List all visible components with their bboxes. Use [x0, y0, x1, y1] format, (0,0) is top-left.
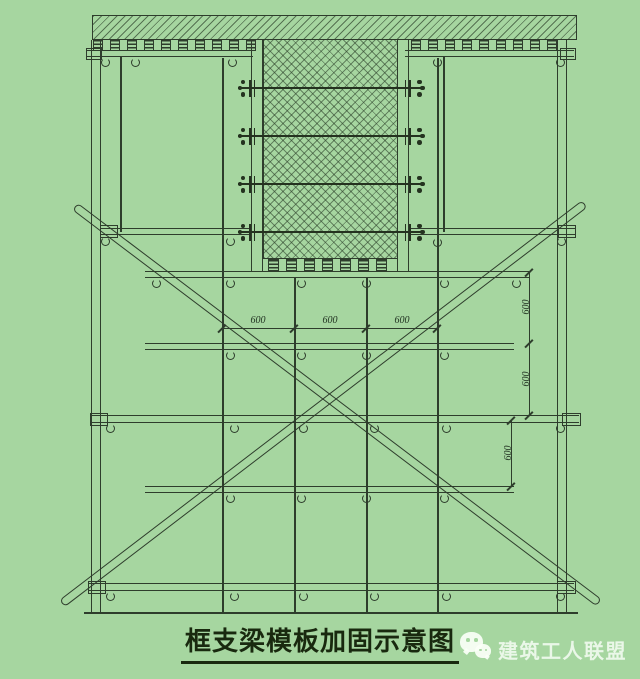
tie-rod-plate	[405, 224, 407, 241]
dim-label: 600	[522, 366, 532, 392]
slab-batten	[161, 39, 171, 51]
diagonal-brace-left-to-right	[72, 203, 601, 606]
dim-label: 600	[504, 440, 514, 466]
slab-batten	[411, 39, 421, 51]
slab-batten	[110, 39, 120, 51]
coupler-hook	[226, 279, 235, 288]
coupler-hook	[106, 424, 115, 433]
slab-section-hatched	[92, 15, 577, 40]
wing-nut	[238, 134, 243, 139]
article-image: 600 600 600 600 600 600 框支梁模板加固示意图 建筑工人联…	[0, 0, 640, 679]
tie-rod-plate	[409, 176, 411, 193]
tie-rod	[238, 183, 424, 186]
coupler-hook	[370, 592, 379, 601]
beam-bottom-batten	[322, 259, 333, 272]
slab-batten	[462, 39, 472, 51]
tie-rod-plate	[409, 224, 411, 241]
beam-bottom-bearer-board	[145, 271, 529, 278]
dim-label: 600	[389, 316, 415, 326]
tie-rod-plate	[254, 224, 256, 241]
wing-nut	[417, 92, 422, 97]
wechat-watermark: 建筑工人联盟	[458, 629, 633, 669]
wing-nut	[420, 230, 425, 235]
wing-nut	[420, 182, 425, 187]
ground-line	[84, 612, 578, 614]
coupler-hook	[557, 237, 566, 246]
coupler-hook	[226, 494, 235, 503]
tie-rod-plate	[405, 80, 407, 97]
coupler-hook	[299, 424, 308, 433]
mid-board-1	[145, 343, 514, 350]
tie-rod-plate	[249, 176, 251, 193]
coupler-hook	[362, 279, 371, 288]
coupler-hook	[440, 494, 449, 503]
coupler-hook	[226, 351, 235, 360]
slab-batten	[178, 39, 188, 51]
scaffold-post-inner-left	[222, 58, 224, 613]
coupler-hook	[230, 424, 239, 433]
scaffold-post-inner-right	[437, 58, 439, 613]
coupler-hook	[228, 58, 237, 67]
slab-batten	[246, 39, 256, 51]
tie-rod	[238, 135, 424, 138]
beam-bottom-batten	[268, 259, 279, 272]
coupler-hook	[106, 592, 115, 601]
form-support-stud-right	[443, 57, 445, 232]
top-board-right	[405, 50, 574, 57]
wing-nut	[417, 140, 422, 145]
coupler-hook	[370, 424, 379, 433]
beam-section-hatched	[263, 39, 398, 259]
coupler-hook	[440, 351, 449, 360]
slab-batten	[212, 39, 222, 51]
dim-label: 600	[522, 294, 532, 320]
slab-batten	[428, 39, 438, 51]
wing-nut	[420, 86, 425, 91]
scaffold-post-outer-left	[91, 40, 101, 613]
beam-bottom-batten	[304, 259, 315, 272]
wing-nut	[417, 224, 422, 229]
coupler-hook	[101, 237, 110, 246]
tie-rod-plate	[405, 176, 407, 193]
tie-rod-plate	[405, 128, 407, 145]
slab-batten	[547, 39, 557, 51]
coupler-hook	[433, 238, 442, 247]
caption: 框支梁模板加固示意图	[160, 621, 480, 664]
dim-label: 600	[245, 316, 271, 326]
wing-nut	[241, 224, 246, 229]
tie-rod-plate	[254, 80, 256, 97]
coupler-hook	[297, 494, 306, 503]
slab-batten	[127, 39, 137, 51]
slab-batten	[496, 39, 506, 51]
wing-nut	[238, 86, 243, 91]
coupler-hook	[297, 351, 306, 360]
wing-nut	[417, 80, 422, 85]
slab-batten	[229, 39, 239, 51]
wing-nut	[241, 128, 246, 133]
coupler-hook	[362, 494, 371, 503]
coupler-hook	[556, 58, 565, 67]
slab-batten	[93, 39, 103, 51]
tie-rod	[238, 87, 424, 90]
wechat-icon	[458, 629, 494, 665]
coupler-hook	[440, 279, 449, 288]
wing-nut	[417, 236, 422, 241]
dimension-line-horizontal	[222, 328, 438, 329]
slab-batten	[513, 39, 523, 51]
beam-side-form-right	[397, 39, 409, 272]
coupler-hook	[230, 592, 239, 601]
wing-nut	[241, 188, 246, 193]
watermark-text: 建筑工人联盟	[498, 635, 627, 664]
wing-nut	[241, 140, 246, 145]
scaffold-post-outer-right	[557, 40, 567, 613]
coupler-hook	[152, 279, 161, 288]
slab-batten	[445, 39, 455, 51]
coupler-hook	[512, 279, 521, 288]
beam-bottom-batten	[358, 259, 369, 272]
wing-nut	[241, 92, 246, 97]
coupler-hook	[299, 592, 308, 601]
coupler-hook	[442, 424, 451, 433]
ledger-upper-left	[100, 228, 251, 235]
wing-nut	[417, 128, 422, 133]
coupler-hook	[226, 237, 235, 246]
top-board-left	[86, 50, 253, 57]
coupler-hook	[556, 592, 565, 601]
wing-nut	[241, 176, 246, 181]
form-support-stud-left	[120, 57, 122, 232]
slab-batten	[530, 39, 540, 51]
wing-nut	[241, 80, 246, 85]
formwork-diagram: 600 600 600 600 600 600	[0, 0, 640, 679]
tie-rod	[238, 231, 424, 234]
beam-bottom-batten	[376, 259, 387, 272]
dim-label: 600	[317, 316, 343, 326]
beam-bottom-batten	[340, 259, 351, 272]
coupler-hook	[297, 279, 306, 288]
slab-batten	[144, 39, 154, 51]
coupler-hook	[433, 58, 442, 67]
wing-nut	[417, 188, 422, 193]
tie-rod-plate	[254, 176, 256, 193]
ledger-middle	[90, 415, 579, 423]
slab-batten	[195, 39, 205, 51]
tie-rod-plate	[249, 128, 251, 145]
slab-batten	[479, 39, 489, 51]
coupler-hook	[131, 58, 140, 67]
tie-rod-plate	[254, 128, 256, 145]
ledger-bottom	[88, 583, 574, 591]
caption-text: 框支梁模板加固示意图	[181, 621, 459, 664]
coupler-hook	[556, 424, 565, 433]
tie-rod-plate	[409, 128, 411, 145]
wing-nut	[241, 236, 246, 241]
wing-nut	[420, 134, 425, 139]
coupler-hook	[101, 58, 110, 67]
tie-rod-plate	[249, 224, 251, 241]
wing-nut	[417, 176, 422, 181]
coupler-hook	[442, 592, 451, 601]
tie-rod-plate	[249, 80, 251, 97]
tie-rod-plate	[409, 80, 411, 97]
coupler-hook	[362, 351, 371, 360]
beam-bottom-batten	[286, 259, 297, 272]
wing-nut	[238, 182, 243, 187]
